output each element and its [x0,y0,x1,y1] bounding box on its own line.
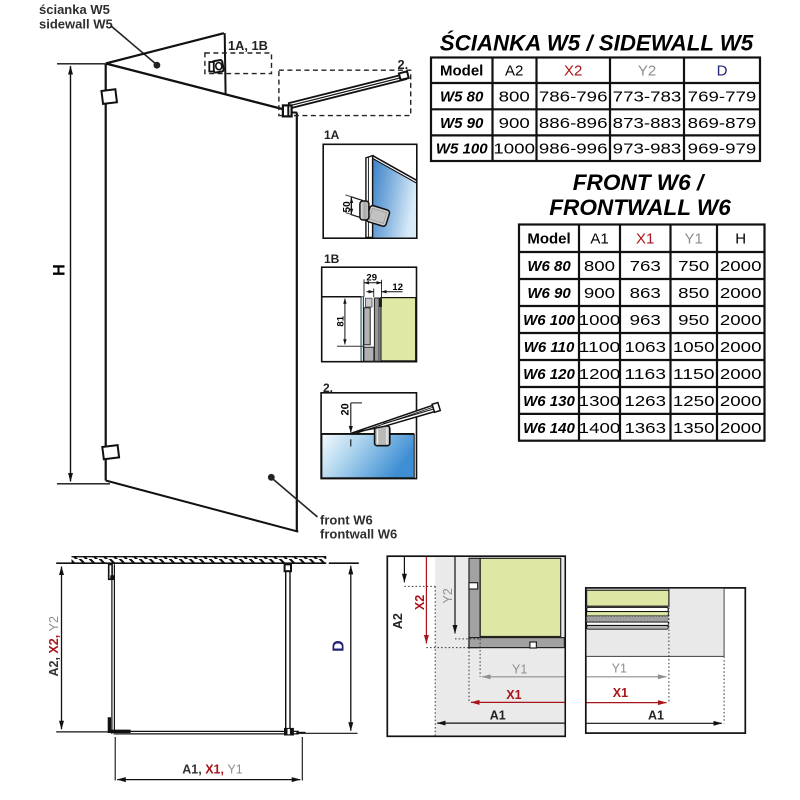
svg-text:869-879: 869-879 [688,115,757,132]
svg-text:963: 963 [630,312,661,329]
svg-text:2000: 2000 [720,339,762,356]
svg-text:2000: 2000 [720,312,762,329]
svg-text:X2: X2 [564,63,582,80]
svg-text:29: 29 [366,273,377,284]
svg-text:1250: 1250 [673,393,715,410]
svg-text:Y2: Y2 [638,63,656,80]
svg-text:A1: A1 [490,709,506,723]
svg-text:1050: 1050 [673,339,715,356]
svg-text:W6 140: W6 140 [523,420,575,437]
svg-text:1000: 1000 [579,312,621,329]
svg-text:X1: X1 [506,688,521,702]
svg-text:950: 950 [678,312,709,329]
svg-text:800: 800 [499,89,530,106]
svg-text:front W6: front W6 [320,512,373,527]
svg-text:81: 81 [336,315,347,326]
svg-text:W5 100: W5 100 [436,141,488,158]
svg-text:Y1: Y1 [512,663,527,677]
svg-text:A2, X2, Y2: A2, X2, Y2 [47,616,61,677]
svg-text:900: 900 [584,285,615,302]
svg-text:973-983: 973-983 [613,141,682,158]
svg-text:A2: A2 [505,63,523,80]
svg-text:2000: 2000 [720,285,762,302]
svg-text:786-796: 786-796 [539,89,608,106]
svg-text:750: 750 [678,258,709,275]
svg-text:773-783: 773-783 [613,89,682,106]
svg-text:Y1: Y1 [612,662,627,676]
svg-text:1200: 1200 [579,366,621,383]
svg-text:FRONT W6 /: FRONT W6 / [573,170,706,195]
svg-text:W6 110: W6 110 [524,339,575,356]
svg-text:1000: 1000 [493,141,535,158]
svg-text:986-996: 986-996 [539,141,608,158]
svg-text:A2: A2 [391,613,405,629]
svg-text:1150: 1150 [673,366,715,383]
svg-text:850: 850 [678,285,709,302]
svg-text:1263: 1263 [624,393,666,410]
svg-text:W6 120: W6 120 [523,366,575,383]
svg-text:ścianka W5: ścianka W5 [39,2,110,17]
svg-text:1350: 1350 [673,420,715,437]
svg-text:D: D [717,63,728,80]
svg-text:2000: 2000 [720,420,762,437]
svg-text:W6 100: W6 100 [523,312,575,329]
svg-text:763: 763 [630,258,661,275]
svg-text:1163: 1163 [624,366,666,383]
svg-text:886-896: 886-896 [539,115,608,132]
svg-text:FRONTWALL W6: FRONTWALL W6 [549,195,731,220]
svg-text:H: H [735,231,746,248]
svg-text:1100: 1100 [579,339,621,356]
svg-text:W6 90: W6 90 [527,285,571,302]
svg-text:2000: 2000 [720,258,762,275]
svg-text:W5 80: W5 80 [440,89,484,106]
svg-text:Model: Model [440,63,483,80]
svg-text:769-779: 769-779 [688,89,757,106]
svg-text:ŚCIANKA W5 / SIDEWALL W5: ŚCIANKA W5 / SIDEWALL W5 [440,31,754,56]
svg-text:969-979: 969-979 [688,141,757,158]
svg-text:1B: 1B [324,252,340,266]
svg-text:1300: 1300 [579,393,621,410]
svg-text:50: 50 [342,201,353,213]
svg-text:A1: A1 [648,709,664,723]
svg-text:Y2: Y2 [441,588,455,603]
svg-text:X1: X1 [636,231,654,248]
svg-text:873-883: 873-883 [613,115,682,132]
svg-text:Y1: Y1 [685,231,703,248]
svg-text:sidewall W5: sidewall W5 [39,16,113,31]
svg-text:20: 20 [340,403,352,415]
svg-text:W6 130: W6 130 [523,393,575,410]
svg-text:800: 800 [584,258,615,275]
svg-text:1A: 1A [324,128,340,142]
svg-text:1063: 1063 [624,339,666,356]
svg-text:863: 863 [630,285,661,302]
svg-text:W5 90: W5 90 [440,115,484,132]
svg-text:900: 900 [499,115,530,132]
svg-text:2000: 2000 [720,366,762,383]
svg-text:1400: 1400 [579,420,621,437]
svg-text:X2: X2 [413,595,427,610]
svg-text:1A, 1B: 1A, 1B [228,38,268,53]
svg-text:frontwall W6: frontwall W6 [320,527,397,542]
svg-text:Model: Model [527,231,570,248]
svg-text:H: H [51,264,69,276]
svg-text:W6 80: W6 80 [527,258,571,275]
svg-text:D: D [331,640,348,652]
svg-text:X1: X1 [613,686,628,700]
svg-text:2.: 2. [398,57,409,72]
svg-text:2000: 2000 [720,393,762,410]
svg-text:A1, X1, Y1: A1, X1, Y1 [182,762,243,776]
svg-text:A1: A1 [590,231,608,248]
svg-text:12: 12 [392,282,403,293]
svg-text:1363: 1363 [624,420,666,437]
